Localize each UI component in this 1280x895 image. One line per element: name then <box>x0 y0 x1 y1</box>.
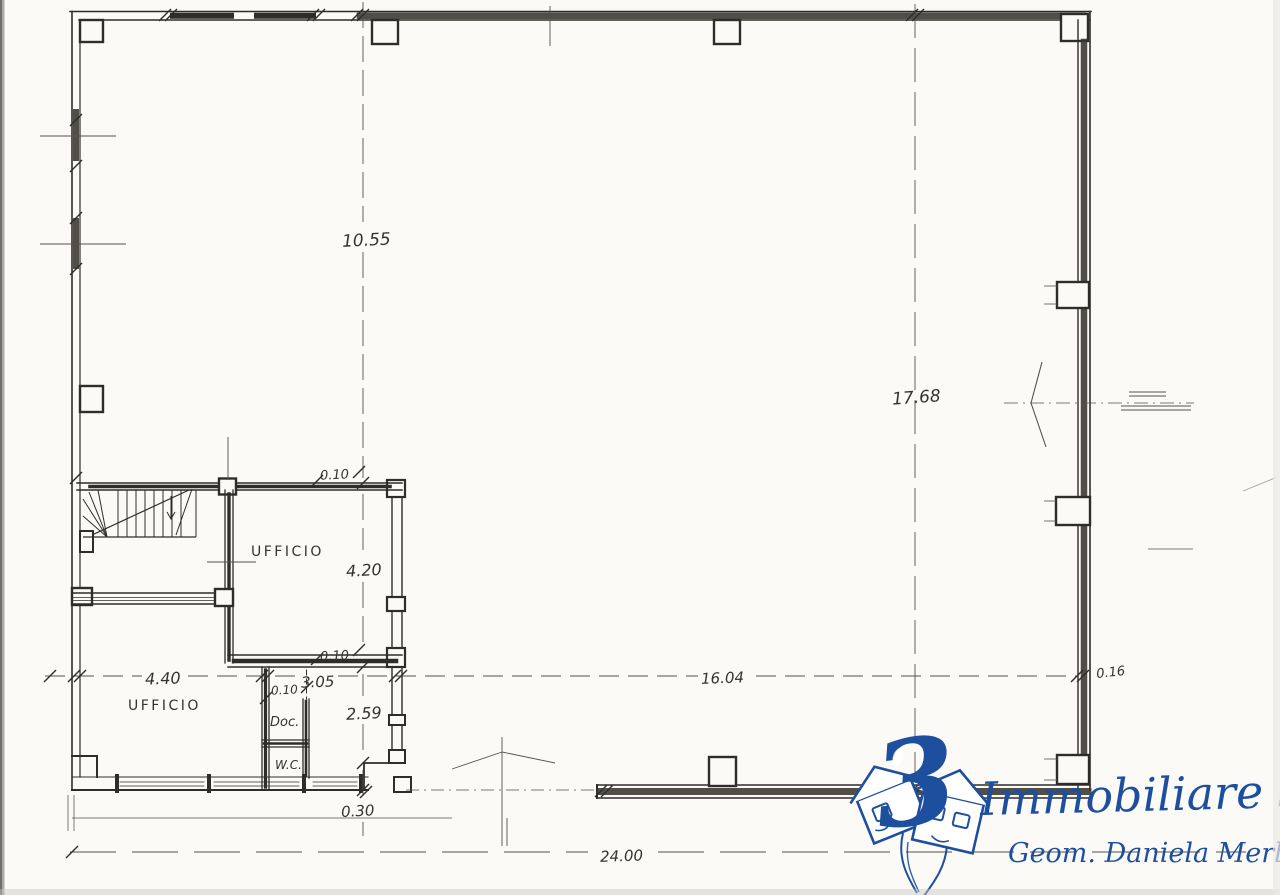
dim-front-span: 16.04 <box>701 668 745 687</box>
room-label-archive: Doc. <box>270 715 299 730</box>
floor-plan-canvas: 10.55 17.68 0.10 UFFICIO 4.20 0.10 4.40 … <box>0 0 1280 895</box>
column <box>372 20 398 44</box>
column <box>709 757 736 786</box>
logo-company-name: Immobiliare 3 <box>978 764 1280 827</box>
corner-pillar <box>80 20 103 42</box>
column <box>1061 14 1088 41</box>
dim-threshold: 0.30 <box>341 801 375 821</box>
room-label-office-upper: UFFICIO <box>251 544 324 560</box>
pilaster <box>80 531 93 552</box>
dim-hall-depth: 17.68 <box>891 386 941 409</box>
column <box>1056 497 1090 525</box>
dim-wall-lower: 0.10 <box>320 648 350 664</box>
dim-office-lower-width: 4.40 <box>145 668 181 688</box>
logo-numeral: 3 <box>866 708 964 856</box>
dim-right-wall: 0.16 <box>1096 664 1126 682</box>
pilaster <box>72 588 92 605</box>
dim-closet-gap: 0.10 <box>271 682 299 697</box>
logo-signature: Geom. Daniela Merlo <box>1008 838 1280 869</box>
pilaster <box>215 589 233 606</box>
column <box>714 20 740 44</box>
balloon-highlight <box>906 793 913 805</box>
column <box>1057 282 1089 308</box>
room-label-office-lower: UFFICIO <box>128 698 201 714</box>
scanned-floor-plan: 10.55 17.68 0.10 UFFICIO 4.20 0.10 4.40 … <box>0 0 1280 895</box>
pilaster <box>80 386 103 412</box>
dim-wall-upper: 0.10 <box>320 467 350 483</box>
room-label-wc: W.C. <box>275 758 302 772</box>
dim-corridor-depth: 2.59 <box>346 703 383 724</box>
dim-top-span: 10.55 <box>342 229 392 252</box>
dim-corridor-span: 3.05 <box>301 672 335 691</box>
dim-overall-width: 24.00 <box>600 846 644 865</box>
dim-office-upper-depth: 4.20 <box>346 560 383 581</box>
